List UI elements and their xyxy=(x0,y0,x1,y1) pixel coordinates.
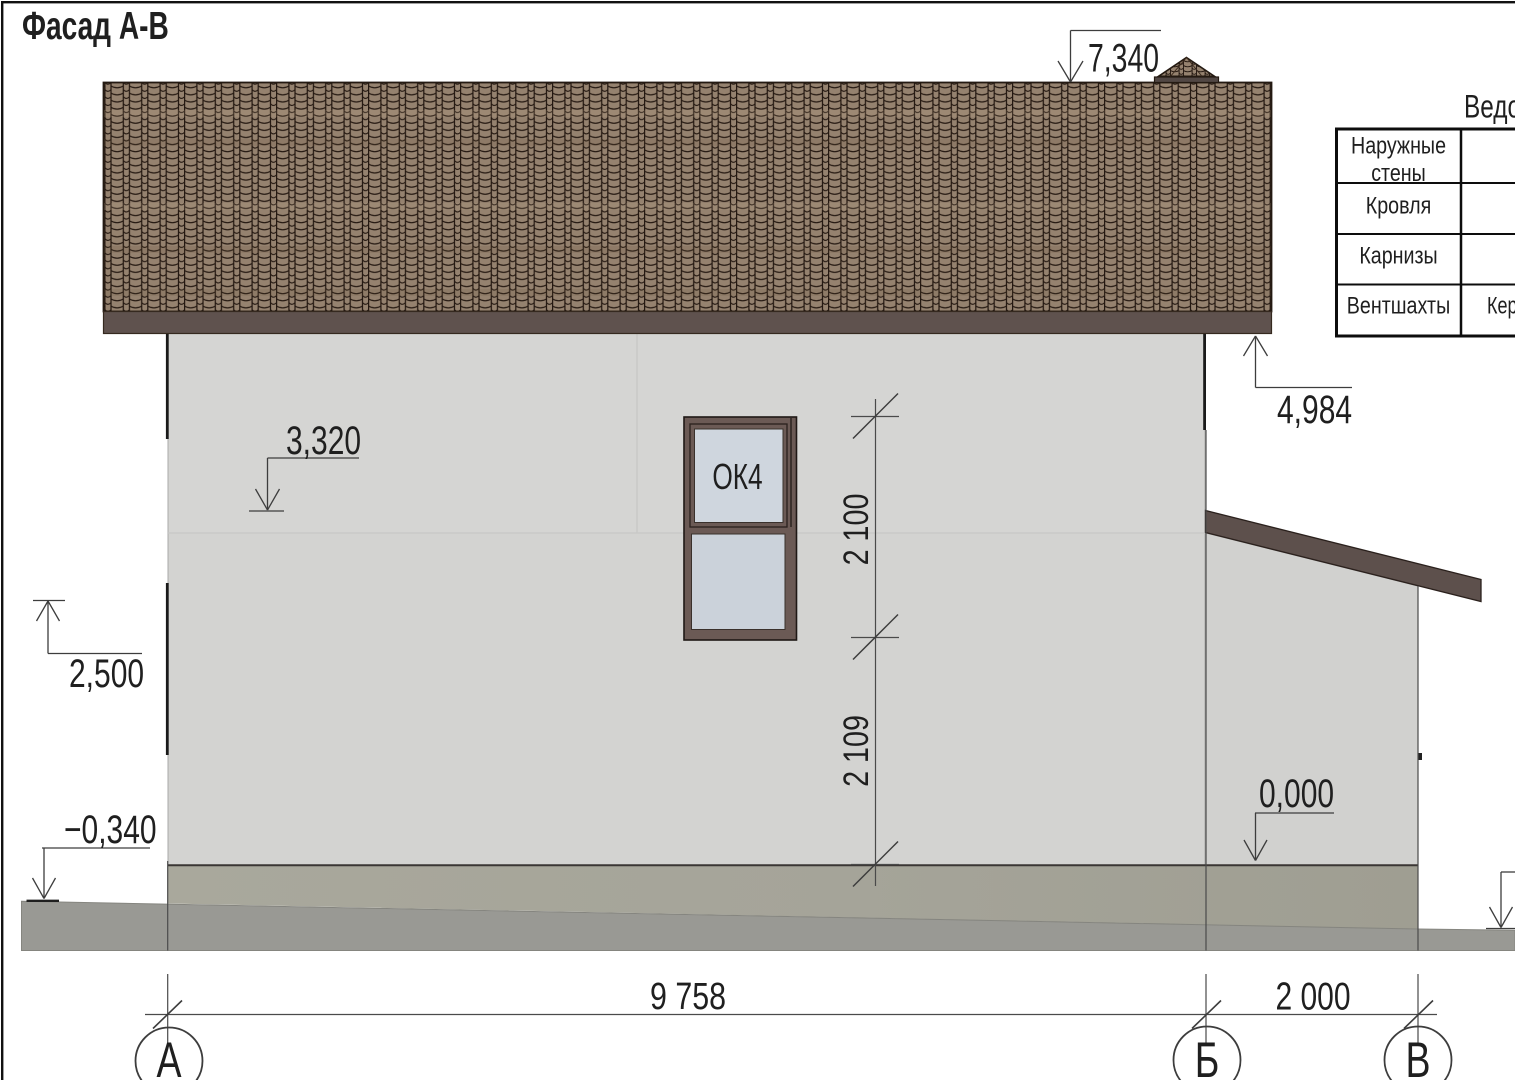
svg-text:Карнизы: Карнизы xyxy=(1359,242,1437,269)
svg-text:Керам: Керам xyxy=(1487,293,1515,319)
svg-text:7,340: 7,340 xyxy=(1088,37,1159,81)
svg-text:2 000: 2 000 xyxy=(1275,975,1350,1019)
svg-text:Наружные: Наружные xyxy=(1351,132,1446,159)
svg-text:2,500: 2,500 xyxy=(69,652,144,696)
svg-text:Ведомость: Ведомость xyxy=(1464,89,1515,125)
svg-text:Вентшахты: Вентшахты xyxy=(1347,292,1450,319)
svg-text:Б: Б xyxy=(1195,1033,1220,1080)
svg-text:3,320: 3,320 xyxy=(286,419,361,463)
svg-text:9 758: 9 758 xyxy=(650,976,726,1018)
svg-text:В: В xyxy=(1405,1033,1430,1080)
svg-text:А: А xyxy=(156,1033,181,1080)
svg-text:2 100: 2 100 xyxy=(836,494,875,566)
svg-text:−0,340: −0,340 xyxy=(64,808,157,852)
svg-text:стены: стены xyxy=(1371,159,1426,186)
svg-text:Фасад А-В: Фасад А-В xyxy=(22,5,169,48)
svg-text:4,984: 4,984 xyxy=(1277,388,1352,432)
svg-text:ОК4: ОК4 xyxy=(712,456,762,497)
svg-text:2 109: 2 109 xyxy=(836,715,875,787)
svg-text:0,000: 0,000 xyxy=(1259,772,1334,816)
svg-text:Кровля: Кровля xyxy=(1366,192,1431,219)
